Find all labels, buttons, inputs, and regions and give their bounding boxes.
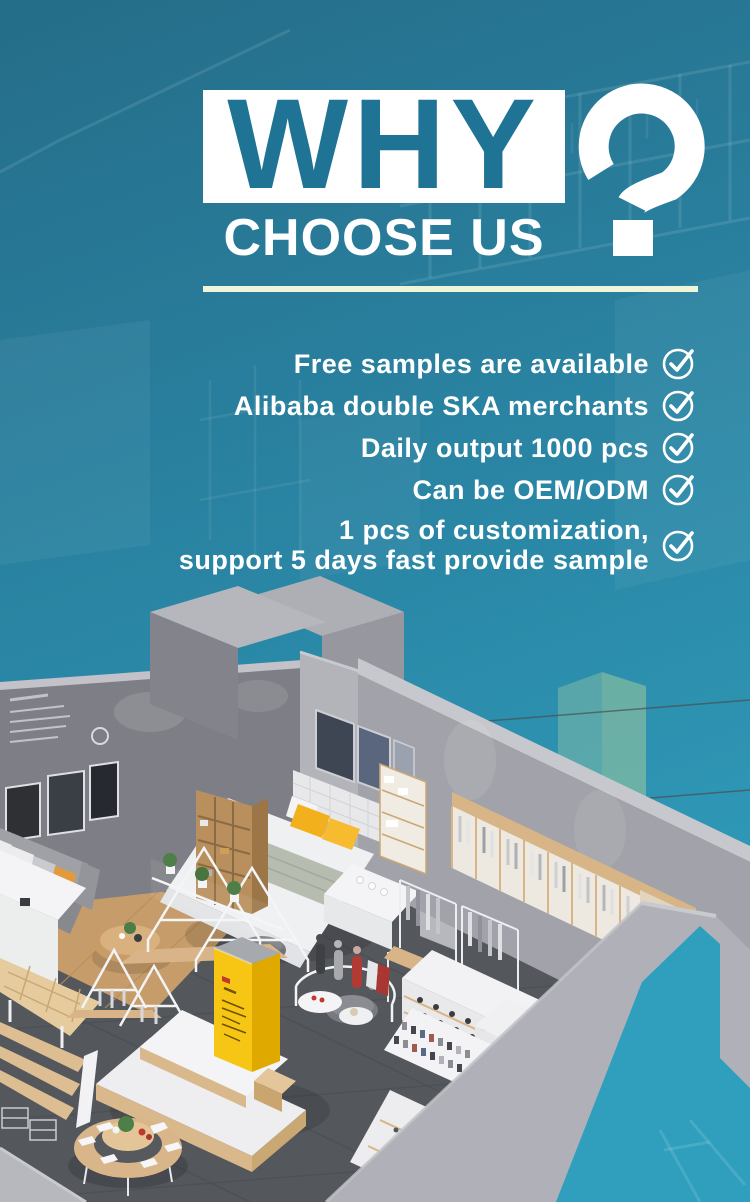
check-circle-icon	[661, 528, 696, 563]
page-title: WHY	[227, 81, 541, 209]
benefit-item: Can be OEM/ODM	[179, 472, 696, 507]
why-title-box: WHY	[203, 90, 565, 203]
store-isometric-illustration	[0, 570, 750, 1202]
check-circle-icon	[661, 346, 696, 381]
benefit-text: Alibaba double SKA merchants	[234, 391, 649, 421]
promo-banner: WHY CHOOSE US Free samples are available…	[0, 0, 750, 1202]
benefit-text: Daily output 1000 pcs	[361, 433, 649, 463]
benefit-item: Free samples are available	[179, 346, 696, 381]
check-circle-icon	[661, 430, 696, 465]
benefit-text: 1 pcs of customization, support 5 days f…	[179, 515, 649, 575]
hero-divider	[203, 286, 698, 292]
benefit-item: Alibaba double SKA merchants	[179, 388, 696, 423]
check-circle-icon	[661, 472, 696, 507]
benefit-text: Can be OEM/ODM	[412, 475, 649, 505]
benefit-item: Daily output 1000 pcs	[179, 430, 696, 465]
check-circle-icon	[661, 388, 696, 423]
question-mark-icon	[575, 82, 715, 282]
benefit-text: Free samples are available	[294, 349, 649, 379]
benefits-list: Free samples are available Alibaba doubl…	[179, 346, 696, 582]
page-subtitle: CHOOSE US	[203, 208, 565, 268]
benefit-item: 1 pcs of customization, support 5 days f…	[179, 515, 696, 575]
